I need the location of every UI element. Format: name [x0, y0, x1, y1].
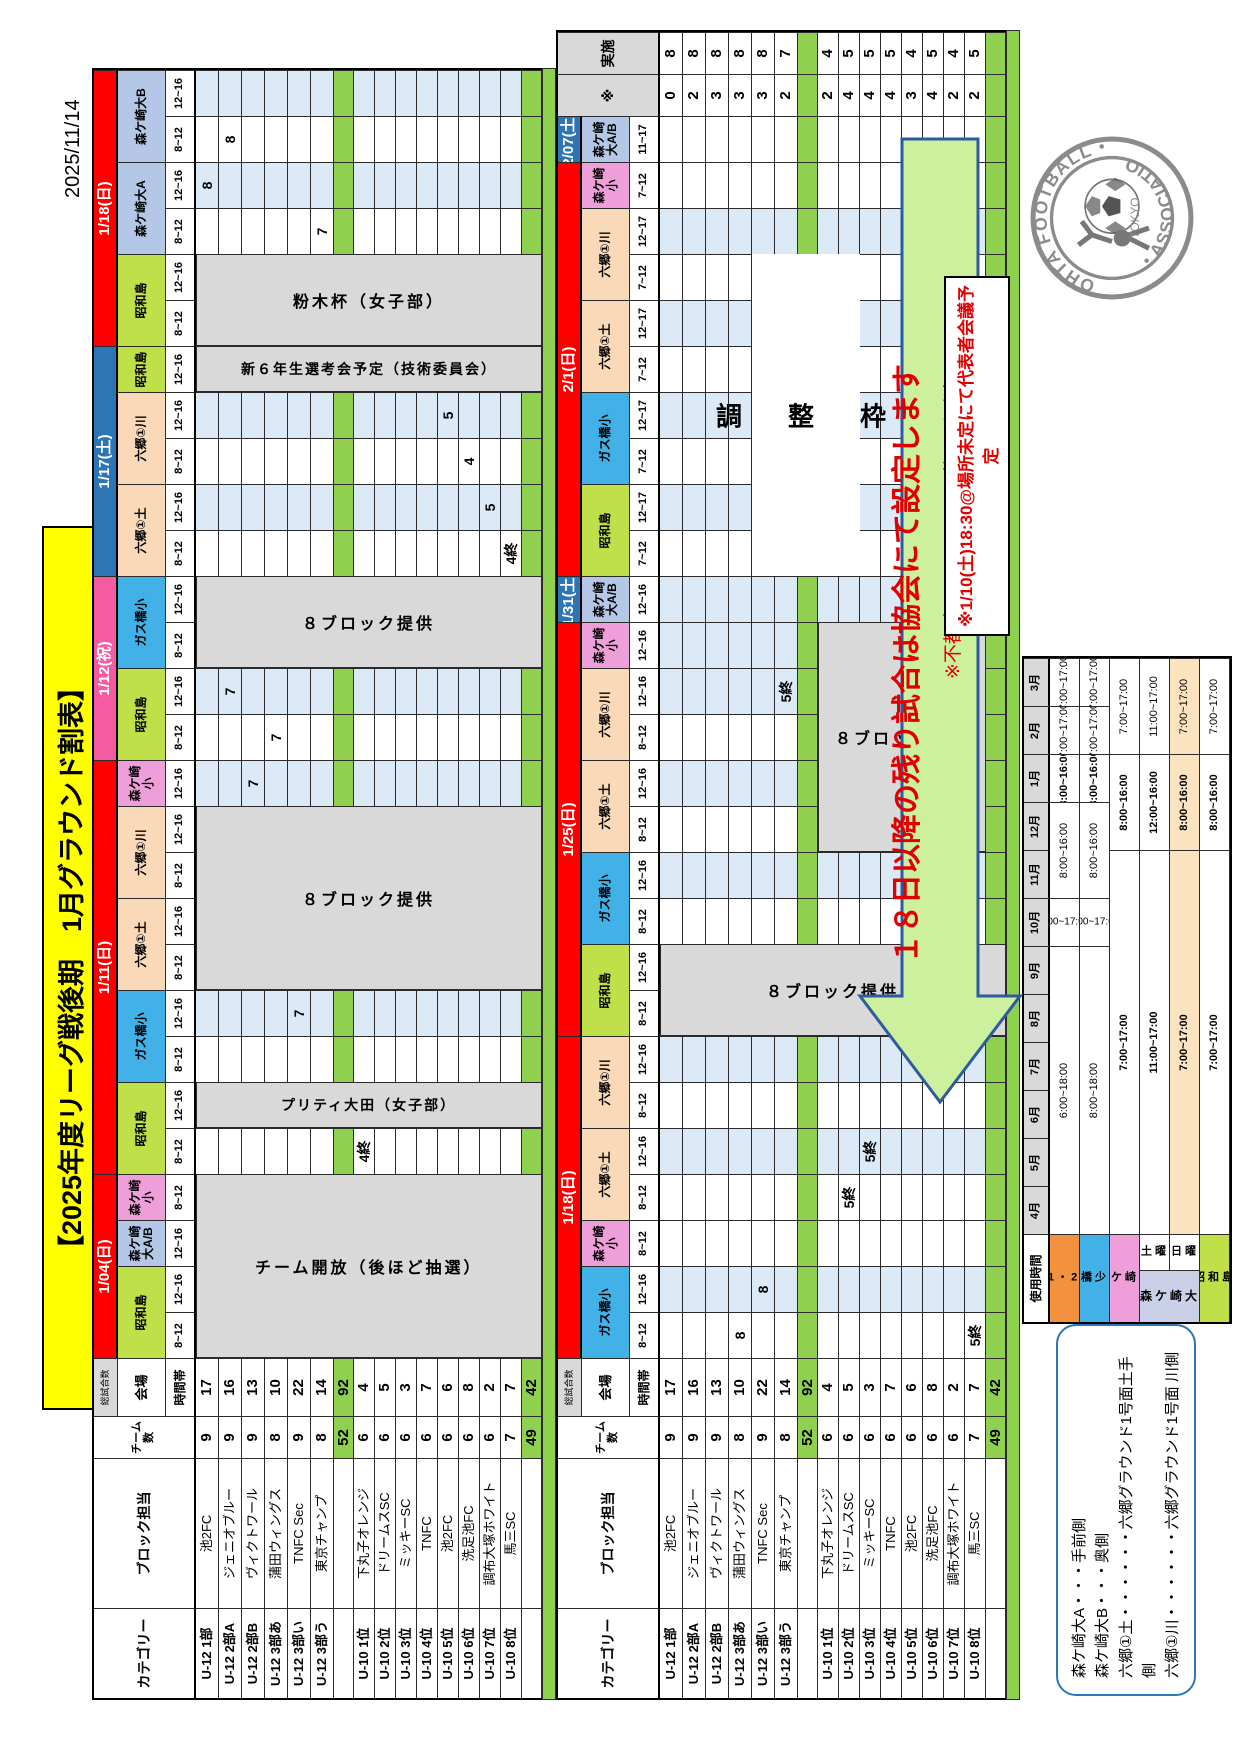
match-annotation: 4終 [354, 1128, 375, 1174]
grid-cell [706, 714, 729, 760]
grid-cell [729, 852, 752, 898]
usage-title: 使用時間 [1024, 1234, 1050, 1322]
grid-cell [265, 990, 288, 1036]
executed-count-cell: 8 [683, 32, 706, 74]
date-header: 1/18(日) [558, 1036, 582, 1358]
timeslot-header: 8~12 [166, 208, 196, 254]
grid-cell [396, 116, 417, 162]
usage-venue-label: 六郷1・2号面 [1050, 1234, 1080, 1322]
timeslot-header: 12~16 [630, 668, 660, 714]
rotated-landscape-sheet: 2025/11/14 【2025年度リーグ戦後期 1月グラウンド割表】 2025… [0, 0, 1240, 1754]
grid-cell [775, 1220, 798, 1266]
grid-cell [683, 760, 706, 806]
grid-cell [196, 990, 219, 1036]
grid-cell [729, 898, 752, 944]
star-count-cell: 2 [683, 74, 706, 116]
category-cell: U-12 3部い [752, 1608, 775, 1698]
grid-cell [396, 484, 417, 530]
grid-cell [375, 714, 396, 760]
venue-header: 六郷①川 [582, 668, 630, 760]
grid-cell [839, 1128, 860, 1174]
grid-cell [706, 300, 729, 346]
team-count-cell: 6 [396, 1416, 417, 1458]
grid-cell [242, 714, 265, 760]
team-count-cell: 6 [375, 1416, 396, 1458]
grid-cell [522, 1036, 542, 1082]
grid-cell [986, 1174, 1006, 1220]
grid-cell [288, 70, 311, 116]
grid-cell [986, 1128, 1006, 1174]
grid-cell [438, 162, 459, 208]
grid-cell [775, 714, 798, 760]
grid-cell [706, 668, 729, 714]
grid-cell [265, 484, 288, 530]
date-header: 1/18(日) [94, 70, 118, 346]
grid-cell [265, 162, 288, 208]
grid-cell [881, 1312, 902, 1358]
match-annotation: 5終 [860, 1128, 881, 1174]
block-manager-team-cell: 馬三SC [501, 1458, 522, 1608]
grid-cell [288, 1036, 311, 1082]
total-matches-cell: 4 [354, 1358, 375, 1416]
grid-cell [706, 1082, 729, 1128]
grid-cell [242, 668, 265, 714]
grid-cell [196, 668, 219, 714]
grid-cell [311, 760, 334, 806]
grid-cell [752, 1174, 775, 1220]
venue-header: ガス橋小 [118, 576, 166, 668]
grid-cell [798, 1312, 818, 1358]
usage-venue-label: ガス橋少年用 [1080, 1234, 1110, 1322]
category-cell: U-12 1部 [196, 1608, 219, 1698]
team-count-cell: 6 [417, 1416, 438, 1458]
grid-cell [798, 852, 818, 898]
ground-legend: 森ケ崎大A・・・手前側森ケ崎大B・・・奥側六郷①土・・・・・・六郷グラウンド1号… [1056, 1324, 1196, 1696]
executed-count-cell: 5 [839, 32, 860, 74]
timeslot-header: 12~16 [630, 852, 660, 898]
match-annotation: 5終 [775, 668, 798, 714]
usage-venue-name: 森ケ崎小 [1110, 1273, 1140, 1285]
total-matches-cell: 16 [683, 1358, 706, 1416]
usage-hours-cell: 12:00~16:00 [1140, 754, 1170, 850]
executed-count-cell: 7 [775, 32, 798, 74]
grid-cell [459, 392, 480, 438]
grid-cell [683, 1312, 706, 1358]
match-annotation: 8 [752, 1266, 775, 1312]
grid-cell [375, 530, 396, 576]
category-cell: U-10 7位 [944, 1608, 965, 1698]
usage-hours-cell: 7:00~17:00 [1050, 658, 1080, 706]
match-annotation: 4終 [501, 530, 522, 576]
total-matches-cell: 7 [881, 1358, 902, 1416]
grid-cell [375, 668, 396, 714]
timeslot-header: 12~16 [166, 484, 196, 530]
grid-cell [944, 1174, 965, 1220]
grid-cell [775, 760, 798, 806]
team-count-cell: 8 [729, 1416, 752, 1458]
grid-cell [396, 392, 417, 438]
team-count-cell: 6 [860, 1416, 881, 1458]
grid-cell [683, 346, 706, 392]
grid-cell [396, 990, 417, 1036]
grid-cell [775, 1312, 798, 1358]
total-matches-cell: 3 [396, 1358, 417, 1416]
team-count-cell: 6 [818, 1416, 839, 1458]
total-matches-cell: 10 [729, 1358, 752, 1416]
timeslot-header: 8~12 [166, 1174, 196, 1220]
total-matches-cell: 14 [775, 1358, 798, 1416]
category-cell: U-10 8位 [501, 1608, 522, 1698]
grid-cell [706, 898, 729, 944]
venue-header: 六郷①土 [118, 898, 166, 990]
merged-block: ８ブロック提供 [196, 576, 542, 668]
grid-cell [752, 806, 775, 852]
category-cell: U-12 3部う [311, 1608, 334, 1698]
match-annotation: 7 [311, 208, 334, 254]
grid-cell [522, 530, 542, 576]
grid-cell [729, 1036, 752, 1082]
timeslot-header: 8~12 [166, 300, 196, 346]
grid-cell [501, 392, 522, 438]
match-annotation: 4 [459, 438, 480, 484]
grid-cell [438, 668, 459, 714]
grid-cell [417, 208, 438, 254]
timeslot-header: 8~12 [166, 530, 196, 576]
grid-cell [818, 1220, 839, 1266]
print-date-right: 2025/11/14 [62, 99, 85, 198]
column-header-star: ※ [558, 74, 660, 116]
grid-cell [459, 70, 480, 116]
grid-cell [683, 1128, 706, 1174]
timeslot-header: 12~16 [630, 1266, 660, 1312]
grid-cell [818, 208, 839, 254]
usage-hours-cell: 6:00~18:00 [1050, 946, 1080, 1234]
venue-header: 六郷①土 [582, 300, 630, 392]
usage-venue-name: ガス橋少年用 [1080, 1273, 1110, 1285]
merged-block-label: 新６年生選考会予定（技術委員会） [241, 359, 497, 379]
grid-cell [752, 714, 775, 760]
merged-block: 新６年生選考会予定（技術委員会） [196, 346, 542, 392]
grid-cell [480, 438, 501, 484]
category-cell: U-10 2位 [839, 1608, 860, 1698]
executed-count-cell: 8 [752, 32, 775, 74]
category-cell: U-10 6位 [459, 1608, 480, 1698]
grid-cell [265, 70, 288, 116]
block-manager-team-cell: TNFC Sec [752, 1458, 775, 1608]
grid-cell [660, 484, 683, 530]
grid-cell [417, 530, 438, 576]
team-count-cell: 6 [881, 1416, 902, 1458]
row-label-spacer [798, 1608, 818, 1698]
subtotal-team-count: 52 [334, 1416, 354, 1458]
grid-cell [775, 852, 798, 898]
total-matches-cell: 2 [480, 1358, 501, 1416]
grid-cell [752, 1082, 775, 1128]
grid-cell [798, 668, 818, 714]
grid-cell [944, 1128, 965, 1174]
grid-cell [459, 714, 480, 760]
representative-meeting-notice: ※1/10(土)18:30@場所未定にて代表者会議予定 [944, 276, 1010, 636]
grid-cell [501, 760, 522, 806]
block-manager-team-cell: 洗足池FC [923, 1458, 944, 1608]
grid-cell [798, 1128, 818, 1174]
match-annotation: 5終 [839, 1174, 860, 1220]
grid-cell [660, 1220, 683, 1266]
grid-cell [196, 208, 219, 254]
usage-hours-cell: 7:00~17:00 [1050, 706, 1080, 754]
grid-cell [219, 162, 242, 208]
timeslot-header: 12~16 [166, 806, 196, 852]
date-header: 1/04(日) [94, 1174, 118, 1358]
match-annotation: 5終 [965, 1312, 986, 1358]
usage-hours-cell: 7:00~17:00 [1170, 658, 1200, 754]
grid-cell [480, 668, 501, 714]
usage-day-label: 日曜 [1170, 1234, 1200, 1270]
grid-cell [242, 392, 265, 438]
grid-cell [798, 760, 818, 806]
executed-count-cell: 4 [818, 32, 839, 74]
grid-cell [480, 162, 501, 208]
total-matches-cell: 4 [818, 1358, 839, 1416]
timeslot-header: 8~12 [630, 1174, 660, 1220]
grid-cell [354, 484, 375, 530]
grid-cell [219, 70, 242, 116]
grid-cell [438, 116, 459, 162]
grid-cell [986, 1312, 1006, 1358]
grid-cell [219, 484, 242, 530]
block-manager-team-cell: TNFC [881, 1458, 902, 1608]
grid-cell [752, 162, 775, 208]
block-manager-team-cell: 池2FC [438, 1458, 459, 1608]
timeslot-header: 12~16 [166, 346, 196, 392]
grid-cell [729, 346, 752, 392]
grid-cell [438, 70, 459, 116]
grid-cell [706, 760, 729, 806]
grid-cell [396, 668, 417, 714]
timeslot-header: 12~16 [166, 70, 196, 116]
timeslot-header: 8~12 [166, 944, 196, 990]
grid-cell [242, 1036, 265, 1082]
usage-month-header: 5月 [1024, 1138, 1050, 1186]
grid-cell [818, 162, 839, 208]
date-header: 1/31(土) [558, 576, 582, 622]
grid-cell [660, 1036, 683, 1082]
venue-header: 森ケ崎小 [118, 760, 166, 806]
grid-cell [438, 1128, 459, 1174]
match-annotation: 8 [219, 116, 242, 162]
grid-cell [311, 1036, 334, 1082]
block-manager-team-cell: ミッキーSC [396, 1458, 417, 1608]
star-count-cell: 0 [660, 74, 683, 116]
usage-hours-cell: 11:00~17:00 [1140, 850, 1170, 1234]
usage-hours-cell: 7:00~17:00 [1080, 706, 1110, 754]
grid-cell [860, 1266, 881, 1312]
grid-cell [288, 208, 311, 254]
grid-cell [706, 852, 729, 898]
grid-cell [660, 1312, 683, 1358]
grid-cell [459, 208, 480, 254]
grid-cell [375, 990, 396, 1036]
grid-cell [798, 576, 818, 622]
grid-cell [375, 484, 396, 530]
grid-cell [417, 714, 438, 760]
grid-cell [459, 760, 480, 806]
grid-cell [706, 530, 729, 576]
column-header-executed: 実施 [558, 32, 660, 74]
grid-cell [706, 1174, 729, 1220]
grid-cell [242, 484, 265, 530]
grid-cell [396, 714, 417, 760]
usage-hours-cell: 8:00~16:00 [1050, 754, 1080, 802]
grid-cell [986, 1266, 1006, 1312]
grid-cell [311, 484, 334, 530]
usage-hours-cell: 7:00~17:00 [1110, 850, 1140, 1234]
venue-header: 森ケ崎小 [582, 1220, 630, 1266]
grid-cell [660, 760, 683, 806]
date-header: 1/11(日) [94, 760, 118, 1174]
grid-cell [417, 1036, 438, 1082]
total-matches-cell: 22 [752, 1358, 775, 1416]
grid-cell [706, 806, 729, 852]
total-matches-cell: 6 [902, 1358, 923, 1416]
column-header-timeband: 時間帯 [166, 1358, 196, 1416]
grid-cell [902, 1128, 923, 1174]
grid-cell [683, 714, 706, 760]
grid-cell [660, 346, 683, 392]
usage-hours-rotated: 7:00~17:00 [1050, 917, 1080, 928]
grid-cell [660, 392, 683, 438]
total-matches-cell: 5 [375, 1358, 396, 1416]
team-count-cell: 8 [311, 1416, 334, 1458]
grid-cell [417, 760, 438, 806]
grid-cell [417, 668, 438, 714]
grid-cell [242, 162, 265, 208]
grid-cell [354, 208, 375, 254]
total-matches-cell: 2 [944, 1358, 965, 1416]
grid-cell [881, 1266, 902, 1312]
grid-cell [660, 438, 683, 484]
timeslot-header: 8~12 [630, 1312, 660, 1358]
grid-cell [683, 806, 706, 852]
grid-cell [288, 1128, 311, 1174]
grid-cell [375, 1036, 396, 1082]
total-matches-cell: 14 [311, 1358, 334, 1416]
grid-cell [818, 1036, 839, 1082]
grid-cell [375, 70, 396, 116]
grid-cell [311, 392, 334, 438]
grid-cell [459, 116, 480, 162]
grid-cell [311, 70, 334, 116]
merged-block: チーム開放（後ほど抽選） [196, 1174, 542, 1358]
usage-venue-label: 昭和島 [1200, 1234, 1230, 1322]
grid-cell [438, 438, 459, 484]
timeslot-header: 8~12 [166, 1036, 196, 1082]
team-count-cell: 8 [775, 1416, 798, 1458]
grid-cell [459, 162, 480, 208]
grid-cell [798, 208, 818, 254]
grid-cell [923, 1312, 944, 1358]
grid-cell [729, 254, 752, 300]
date-header: 1/17(土) [94, 346, 118, 576]
star-count-cell [798, 74, 818, 116]
grid-cell [438, 530, 459, 576]
grid-cell [683, 1266, 706, 1312]
timeslot-header: 12~16 [630, 1128, 660, 1174]
team-count-cell: 9 [219, 1416, 242, 1458]
grid-cell [775, 116, 798, 162]
grid-cell [683, 208, 706, 254]
grid-cell [660, 530, 683, 576]
block-manager-team-cell: TNFC Sec [288, 1458, 311, 1608]
grid-cell [219, 530, 242, 576]
grid-cell [752, 852, 775, 898]
grid-cell [660, 622, 683, 668]
grid-cell [683, 392, 706, 438]
grid-cell [459, 484, 480, 530]
usage-venue-name: 昭和島 [1200, 1273, 1230, 1285]
venue-header: 昭和島 [118, 254, 166, 346]
grid-cell [375, 162, 396, 208]
grid-cell [334, 392, 354, 438]
grid-cell [334, 484, 354, 530]
grid-cell [288, 116, 311, 162]
grid-cell [775, 1128, 798, 1174]
table-bottom-green-band [542, 68, 556, 1700]
star-count-cell: 3 [706, 74, 729, 116]
block-manager-team-cell: ジェニオブルー [219, 1458, 242, 1608]
usage-hours-cell: 8:00~16:00 [1080, 754, 1110, 802]
total-matches-cell: 16 [219, 1358, 242, 1416]
grid-cell [354, 1036, 375, 1082]
grid-cell [729, 116, 752, 162]
grid-cell [818, 1266, 839, 1312]
match-annotation: 7 [288, 990, 311, 1036]
grid-cell [219, 1128, 242, 1174]
grid-cell [354, 760, 375, 806]
grid-cell [706, 484, 729, 530]
venue-header: 昭和島 [118, 668, 166, 760]
grid-cell [311, 162, 334, 208]
grid-cell [706, 1036, 729, 1082]
grid-cell [683, 1082, 706, 1128]
grid-cell [660, 208, 683, 254]
subtotal-total-matches: 42 [986, 1358, 1006, 1416]
grid-cell [683, 484, 706, 530]
grid-cell [965, 1174, 986, 1220]
block-manager-team-cell: ドリームスSC [375, 1458, 396, 1608]
category-cell: U-10 2位 [375, 1608, 396, 1698]
grid-cell [683, 438, 706, 484]
column-header-team-count: チーム数 [94, 1416, 196, 1458]
executed-count-cell: 5 [965, 32, 986, 74]
subtotal-total-matches: 42 [522, 1358, 542, 1416]
grid-cell [683, 530, 706, 576]
timeslot-header: 12~16 [630, 622, 660, 668]
grid-cell [798, 806, 818, 852]
grid-cell [752, 1128, 775, 1174]
grid-cell [729, 576, 752, 622]
grid-cell [798, 622, 818, 668]
team-count-cell: 9 [288, 1416, 311, 1458]
grid-cell [354, 990, 375, 1036]
merged-block: 調 整 枠 [752, 254, 860, 576]
grid-cell [752, 622, 775, 668]
grid-cell [311, 438, 334, 484]
timeslot-header: 8~12 [630, 990, 660, 1036]
grid-cell [242, 116, 265, 162]
grid-cell [334, 1036, 354, 1082]
grid-cell [219, 392, 242, 438]
